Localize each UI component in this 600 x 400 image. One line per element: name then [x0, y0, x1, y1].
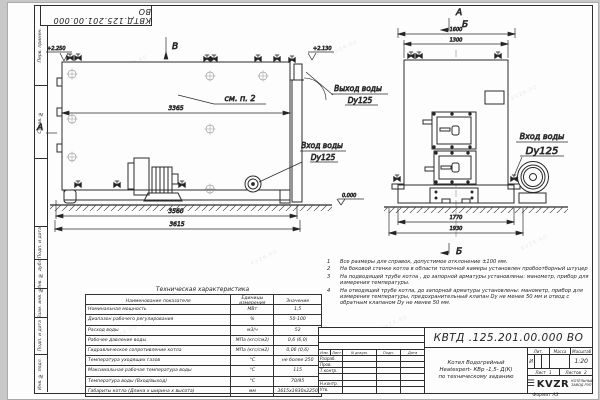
param-value: 52	[274, 326, 321, 335]
param-units: °С	[231, 377, 274, 386]
notes-list: 1 Все размеры для справок, допустимое от…	[327, 259, 589, 308]
table-row: Габариты котла (Длина х ширина х высота)…	[86, 386, 321, 396]
tech-table-title: Техническая характеристика	[85, 286, 320, 293]
note-item: 4 На отводящей трубе котла, до запорной …	[327, 288, 589, 307]
param-value: 50-100	[274, 315, 321, 324]
param-name: Номинальная мощность	[86, 305, 231, 314]
drawing-canvas: 3365 3560 3615 +2.250 +2.130	[0, 0, 600, 262]
document-name: Котел Водогрейный Heatexpert- КВр -1,5- …	[424, 348, 527, 393]
param-value: 3615х1930х2250	[274, 387, 321, 396]
table-row: Температура воды (Вход/выход) °С 70/95	[86, 376, 321, 386]
table-row: Расход воды м3/ч 52	[86, 325, 321, 335]
frame-cell-label: Инв. № дубл.	[38, 260, 43, 289]
sheets-value: 2	[584, 369, 587, 375]
row-nkontr: Н.контр.	[319, 381, 343, 386]
param-name: Рабочее давление воды	[86, 336, 231, 345]
section-mark-a-left: А	[36, 123, 57, 133]
sheets-label: Листов	[565, 369, 581, 375]
note-number: 4	[327, 288, 340, 307]
note-text: На отводящей трубе котла, до запорной ар…	[340, 288, 589, 307]
svg-text:+2.250: +2.250	[47, 46, 66, 52]
note-text: Все размеры для справок, допустимое откл…	[340, 259, 507, 265]
col-izm: Изм.	[319, 350, 331, 355]
dim-1930: 1930	[450, 226, 463, 232]
company-name-line2: ЗАВОД РЭП	[571, 384, 593, 388]
row-blank	[319, 374, 343, 379]
table-row: Максимальная рабочая температура воды °С…	[86, 365, 321, 375]
table-row: Номинальная мощность МВт 1,5	[86, 304, 321, 314]
svg-text:см. п. 2: см. п. 2	[225, 94, 256, 103]
row-prov: Пров.	[319, 362, 343, 367]
doc-name-line3: по техническому заданию	[439, 374, 514, 381]
title-block-signature-grid: Изм. Лист N докум. Подп. Дата Разраб. Пр…	[319, 328, 424, 393]
param-value: 1,5	[274, 305, 321, 314]
param-value: не более 250	[274, 356, 321, 365]
pump	[518, 162, 549, 204]
label-outlet: Выход воды Dy125	[306, 72, 388, 105]
note-number: 2	[327, 266, 340, 272]
format-label: Формат А3	[500, 393, 591, 398]
svg-text:Б: Б	[462, 20, 468, 30]
note-item: 1 Все размеры для справок, допустимое от…	[327, 259, 589, 265]
dim-3615: 3615	[169, 221, 184, 228]
svg-text:Б: Б	[456, 247, 462, 257]
param-name: Гидравлическое сопротивление котла	[86, 346, 231, 355]
param-value: 115	[274, 366, 321, 375]
sheet-value: 1	[549, 369, 552, 375]
mass-value	[550, 355, 571, 368]
frame-cell: Подп. и дата	[34, 318, 47, 355]
note-number: 1	[327, 259, 340, 265]
svg-text:+2.130: +2.130	[313, 46, 332, 52]
frame-cell: Взам. инв. №	[34, 289, 47, 318]
signature-rows: Разраб. Пров. Т.контр. Н.контр. Утв.	[319, 356, 424, 394]
param-units: мм	[231, 387, 274, 396]
row-razrab: Разраб.	[319, 356, 343, 361]
svg-text:А: А	[455, 8, 462, 18]
tech-table-header: Наименование показателя Единицы измерени…	[86, 295, 321, 304]
param-name: Температура воды (Вход/выход)	[86, 377, 231, 386]
frame-cell-label: Подп. и дата	[38, 320, 43, 351]
table-row: Диапазон рабочего регулирования % 50-100	[86, 314, 321, 324]
table-row: Температура уходящих газов °С не более 2…	[86, 355, 321, 365]
dim-3560: 3560	[168, 208, 183, 215]
note-text: На боковой стенке котла в области топочн…	[340, 266, 588, 272]
param-units: МПа (кгс/см2)	[231, 346, 274, 355]
table-row: Рабочее давление воды МПа (кгс/см2) 0,6 …	[86, 335, 321, 345]
drawing-sheet: KVZR.RU KVZR.RU KVZR.RU KVZR.RU KVZR.RU …	[0, 0, 600, 400]
dim-1600: 1600	[450, 27, 463, 33]
dim-1300: 1300	[450, 38, 463, 44]
title-block-right: Лит. Масса Масштаб И 1:20 Лист1 Листов2 …	[527, 348, 592, 393]
frame-cell: Инв. № дубл.	[34, 260, 47, 289]
lit-mass-scale-values: И 1:20	[528, 355, 592, 369]
note-number: 3	[327, 274, 340, 287]
note-text: На подводящей трубе котла , до запорной …	[340, 274, 589, 287]
lit-mass-scale-header: Лит. Масса Масштаб	[528, 348, 592, 355]
scale-header: Масштаб	[571, 348, 592, 354]
sheet-count-row: Лист1 Листов2	[528, 369, 592, 376]
ground-line-front	[384, 207, 568, 213]
elevation-mark-ground: 0.000	[337, 193, 364, 205]
svg-text:Вход воды: Вход воды	[301, 141, 343, 150]
note-item: 3 На подводящей трубе котла , до запорно…	[327, 274, 589, 287]
tech-table: Наименование показателя Единицы измерени…	[85, 294, 322, 397]
dim-3365: 3365	[168, 105, 183, 112]
param-units: МВт	[231, 305, 274, 314]
title-block: Изм. Лист N докум. Подп. Дата Разраб. Пр…	[318, 327, 593, 394]
svg-text:Dy125: Dy125	[526, 146, 559, 157]
mass-header: Масса	[550, 348, 572, 354]
kvzr-logo-text: KVZR	[537, 379, 569, 390]
frame-cell: Инв. № подл.	[34, 355, 47, 392]
sheet-label: Лист	[535, 369, 546, 375]
col-data: Дата	[401, 350, 424, 355]
svg-text:В: В	[172, 42, 178, 52]
lit-value: И	[528, 355, 535, 368]
table-row: Гидравлическое сопротивление котла МПа (…	[86, 345, 321, 355]
boiler-body-front	[404, 60, 508, 185]
frame-cell-label: Инв. № подл.	[38, 358, 43, 390]
param-units: °С	[231, 356, 274, 365]
boiler-body-side	[62, 62, 290, 190]
ground-line-side	[50, 205, 332, 211]
change-rows	[319, 328, 424, 349]
frame-cell-label: Взам. инв. №	[38, 289, 43, 318]
document-designation: КВТД .125.201.00.000 ВО	[424, 328, 592, 348]
boiler-front-view	[384, 50, 568, 238]
lit-header: Лит.	[528, 348, 550, 354]
param-name: Габариты котла (Длина х ширина х высота)	[86, 387, 231, 396]
view-mark-b: В	[164, 37, 178, 59]
col-list: Лист	[331, 350, 343, 355]
param-name: Диапазон рабочего регулирования	[86, 315, 231, 324]
row-utv: Утв.	[319, 387, 343, 393]
param-units: °С	[231, 366, 274, 375]
doc-name-line2: Heatexpert- КВр -1,5- Д(К)	[439, 367, 512, 374]
col-dokum: N докум.	[343, 350, 377, 355]
dim-1770: 1770	[450, 215, 463, 221]
svg-text:0.000: 0.000	[342, 193, 356, 199]
section-mark-b-bottom: Б	[441, 243, 462, 257]
scale-value: 1:20	[570, 355, 592, 368]
kvzr-logo-icon: ☰	[527, 379, 535, 389]
svg-text:Dy125: Dy125	[311, 153, 336, 162]
param-name: Расход воды	[86, 326, 231, 335]
elevation-mark-chimney: +2.130	[308, 46, 334, 60]
param-value: 0,06 (0,6)	[274, 346, 321, 355]
svg-text:Выход воды: Выход воды	[334, 84, 382, 93]
company-name: КОТЕЛЬНЫЙ ЗАВОД РЭП	[571, 380, 593, 388]
row-tkontr: Т.контр.	[319, 368, 343, 373]
note-item: 2 На боковой стенке котла в области топо…	[327, 266, 589, 272]
svg-text:А: А	[36, 123, 43, 133]
param-name: Температура уходящих газов	[86, 356, 231, 365]
svg-text:Вход воды: Вход воды	[520, 132, 565, 141]
svg-text:Dy125: Dy125	[348, 96, 373, 105]
col-podp: Подп.	[377, 350, 401, 355]
param-value: 70/95	[274, 377, 321, 386]
outlet-pipe	[294, 64, 302, 80]
inlet-flange-side	[245, 176, 261, 192]
param-units: МПа (кгс/см2)	[231, 336, 274, 345]
doc-name-line1: Котел Водогрейный	[447, 360, 504, 367]
company-logo: ☰ KVZR КОТЕЛЬНЫЙ ЗАВОД РЭП	[528, 376, 592, 392]
param-value: 0,6 (6,0)	[274, 336, 321, 345]
param-units: м3/ч	[231, 326, 274, 335]
param-name: Максимальная рабочая температура воды	[86, 366, 231, 375]
lit-cells: И	[528, 355, 550, 368]
boiler-side-view	[50, 54, 332, 211]
param-units: %	[231, 315, 274, 324]
